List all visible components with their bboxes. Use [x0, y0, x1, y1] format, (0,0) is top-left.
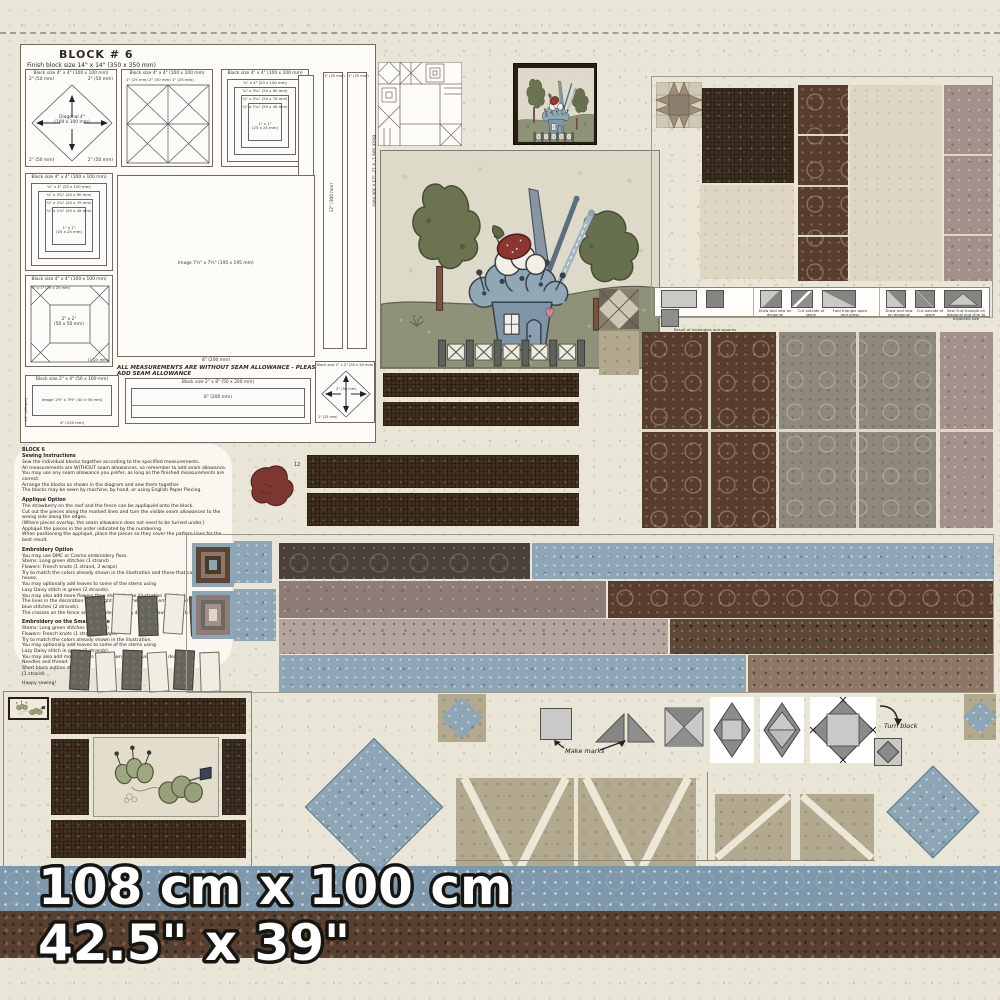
swatch-section-top-right: Result of rectangles and squares Draw an…: [651, 76, 993, 318]
template-piece: [121, 650, 142, 691]
applique-heading: Appliqué Option: [22, 498, 66, 503]
tan-panel-diag-1: [715, 794, 791, 860]
frame-strip-bottom: [51, 820, 246, 858]
fabric-square-tan: [599, 331, 639, 375]
size-banner-imperial: 42.5" x 39": [30, 914, 450, 972]
fabric-strip-brown-3: [307, 455, 579, 488]
tan-panel-v2: [578, 778, 696, 878]
fabric-strip-purplebrown: [279, 543, 530, 579]
fabric-strip-pinkbranch: [279, 619, 668, 654]
frame-strip-top: [51, 698, 246, 734]
diagram-logcabin-4x4-b: Block size 4" x 4" (100 x 100 mm) ¾" x 4…: [25, 173, 113, 271]
triangle-pressed-icon: [822, 290, 856, 308]
diagram-strips-1x12: 1" (25 mm) 12" (300 mm): [323, 72, 343, 349]
fabric-panel-taupecircles: [779, 332, 936, 528]
strawberry-applique-piece: [248, 463, 296, 509]
closing-text: Happy sewing!: [22, 681, 56, 686]
fabric-panel-browncircles: [642, 332, 776, 528]
size-banner-metric: 108 cm x 100 cm: [30, 858, 550, 916]
diamond-step-1: [710, 697, 754, 763]
assembly-square: [540, 708, 572, 740]
template-piece: [137, 596, 158, 637]
fabric-strip-brown-1: [383, 373, 579, 397]
diag-line: [715, 794, 791, 860]
blue-diamond-right: [886, 765, 979, 858]
logcabin-block-brown: [192, 543, 234, 587]
pinwheel-block: [599, 289, 639, 329]
diagram-strips-1x12-b: 1" (25 mm): [347, 72, 367, 349]
caterpillar-illustration: [94, 738, 218, 816]
construction-steps-strip: Result of rectangles and squares Draw an…: [654, 287, 990, 317]
strip-section-middle: [186, 534, 994, 693]
template-piece: [111, 594, 133, 635]
cutting-diagram-panel: BLOCK # 6 Finish block size 14" x 14" (3…: [20, 44, 376, 443]
fabric-panel-sheet: { "header": { "title": "BLOCK # 6", "sub…: [0, 0, 1000, 1000]
panel-title: BLOCK # 6: [59, 48, 133, 61]
diamond-step-2: [760, 697, 804, 763]
diagram-2x4: Block size 2" x 4" (50 x 100 mm) Image 1…: [25, 375, 119, 427]
small-picture-frame: [513, 63, 597, 145]
selvage-dashed-line: [0, 32, 1000, 34]
turn-block-label: Turn block: [884, 722, 918, 730]
swatch-section-mid-right: [596, 330, 994, 530]
fabric-square-darkbrown: [702, 88, 794, 183]
corner-assembly-diagram: [378, 62, 462, 146]
make-marks-arrow-2: [552, 738, 566, 750]
blue-diamond-edge: [963, 700, 997, 734]
applique-piece-number: 12: [294, 462, 300, 468]
seam-allowance-note: ALL MEASUREMENTS ARE WITHOUT SEAM ALLOWA…: [117, 365, 327, 377]
fabric-strip-brown-2: [383, 402, 579, 426]
fabric-strip-blue-bottom: [279, 655, 746, 692]
diagram-diamond-2x2: Block size 2" x 2" (50 x 50 mm) 2" (50 m…: [315, 361, 375, 423]
assembly-step-box-3: [810, 697, 876, 763]
fabric-2x2-cream: [700, 185, 794, 279]
diagram-2x8: Block size 2" x 8" (50 x 200 mm) 8" (200…: [125, 378, 311, 424]
template-piece: [69, 650, 91, 691]
flying-geese-icon: [944, 290, 982, 308]
diamond-arrows-icon: [321, 370, 371, 418]
fabric-panel-lightmauve: [940, 332, 993, 528]
diamond-step-3: [810, 697, 876, 763]
guide-line-v: [707, 772, 708, 861]
fabric-strip-browndots: [670, 619, 993, 654]
square-dark-icon: [706, 290, 724, 308]
assembly-hourglass-block: [664, 707, 704, 747]
make-marks-arrow: [598, 738, 628, 752]
fabric-strip-brown-4: [307, 493, 579, 526]
logcabin-block-blue: [192, 591, 234, 639]
diag-line: [800, 794, 874, 860]
fabric-strip-mauve: [279, 581, 606, 618]
diagram-image-large: Image 7¾" x 7¾" (195 x 195 mm): [117, 175, 315, 357]
mini-thumbnail-frame: [8, 697, 49, 720]
diagram-diagonal-4x4: Block size 4" x 4" (100 x 100 mm) 2" (50…: [25, 69, 117, 167]
embroidery-heading: Embroidery Option: [22, 548, 73, 553]
star-block: [656, 82, 702, 128]
assembly-step-box-1: [710, 697, 754, 763]
panel-subtitle: Finish block size 14" x 14" (350 x 350 m…: [27, 62, 156, 69]
square-diagonal-icon: [760, 290, 782, 308]
fabric-strip-taupebranch: [748, 655, 993, 692]
sewing-heading: Sewing Instructions: [22, 454, 76, 459]
fabric-column-browncircles: [798, 85, 848, 281]
square-cut-icon: [791, 290, 813, 308]
mini-caterpillar-thumbnail: [10, 699, 47, 718]
blue-diamond-large: [305, 738, 444, 877]
sewing-lines: Sew the individual blocks together accor…: [22, 460, 230, 494]
template-piece: [85, 595, 108, 636]
diamond-block-edge: [964, 694, 996, 740]
fabric-square-blue-1: [234, 541, 272, 583]
assembly-step-box-2: [760, 697, 804, 763]
square-two-triangles-icon: [915, 290, 935, 308]
metric-size-text: 108 cm x 100 cm: [38, 858, 512, 916]
fabric-strip-browncircles: [608, 581, 993, 618]
fabric-column-cream: [850, 85, 942, 281]
diamond-block-small: [438, 694, 486, 742]
construction-group-3: Draw and sew on diagonal Cut outside of …: [884, 290, 988, 321]
assembly-result-block: [874, 738, 902, 766]
blue-diamond-small: [441, 697, 483, 739]
result-diamond: [877, 741, 900, 764]
template-piece: [95, 652, 117, 693]
frame-strip-right: [222, 739, 246, 815]
template-piece: [163, 593, 186, 634]
small-picture-section: [3, 691, 252, 882]
instructions-title: BLOCK 6: [22, 448, 45, 453]
rect-light-icon: [661, 290, 697, 308]
triangle-grid-icon: [126, 84, 210, 164]
diagram-triangles-4x4: Block size 4" x 4" (100 x 100 mm) 1" (25…: [121, 69, 213, 167]
small-cupcake-picture: [518, 68, 594, 142]
diagram-hourglass-4x4: Block size 4" x 4" (100 x 100 mm) 2" x 2…: [25, 275, 113, 367]
tan-panel-diag-2: [800, 794, 874, 860]
frame-strip-left: [51, 739, 89, 815]
imperial-size-text: 42.5" x 39": [38, 914, 350, 972]
fabric-column-mauvedots: [944, 85, 992, 281]
square-diagonal-icon: [886, 290, 906, 308]
construction-group-2: Draw and sew on diagonal Cut outside of …: [758, 290, 876, 317]
fabric-square-blue-2: [234, 589, 276, 641]
template-piece: [147, 651, 170, 692]
caterpillar-picture: [93, 737, 219, 817]
construction-group-1: Result of rectangles and squares: [659, 290, 751, 332]
fabric-strip-blue-top: [532, 543, 993, 579]
diagram-logcabin-4x4-a: Block size 4" x 4" (100 x 100 mm) ¾" x 4…: [221, 69, 309, 167]
square-dark-icon: [661, 309, 679, 327]
v-lines: [578, 778, 696, 878]
